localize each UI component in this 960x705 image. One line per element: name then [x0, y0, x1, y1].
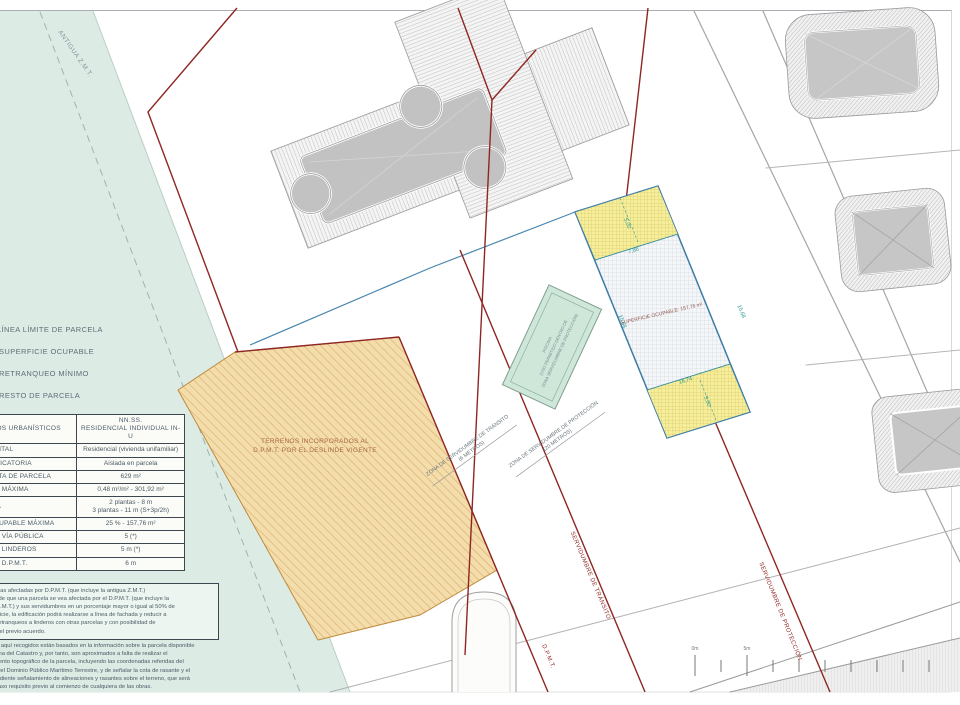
table-row: SUPERFICIE OCUPABLE MÁXIMA 25 % - 157,76…	[0, 518, 185, 531]
table-row: TIPOLOGÍA EDIFICATORIA Aislada en parcel…	[0, 457, 185, 470]
building-mid-right	[833, 187, 952, 294]
small-building-outline	[452, 592, 516, 692]
building-top-right	[784, 6, 941, 120]
terrenos-label-line2: D.P.M.T. POR EL DESLINDE VIGENTE	[253, 447, 377, 454]
piscina: PISCINA (USO PERMITIDO DENTRO DE ZONA SE…	[502, 285, 601, 409]
superficie-ocupable-band: 5,00 7,86 15,68 15,68 16,74 5,00 SUPERFI…	[575, 186, 750, 438]
table-cell-two-line: 2 plantas - 8 m 3 plantas - 11 m (S+3p/2…	[77, 496, 185, 517]
building-bottom-right	[870, 386, 960, 494]
main-building	[244, 0, 640, 276]
legend-item-superficie-ocupable: SUPERFICIE OCUPABLE	[0, 340, 134, 362]
dim-side-right: 15,68	[736, 304, 747, 319]
table-header-right: NN.SS. RESIDENCIAL INDIVIDUAL IN-U	[77, 415, 185, 444]
table-row: EDIFICABILIDAD MÁXIMA 0,48 m²/m² - 301,9…	[0, 483, 185, 496]
legend-label: RESTO DE PARCELA	[0, 391, 80, 400]
legend: LÍNEA LÍMITE DE PARCELA SUPERFICIE OCUPA…	[0, 318, 134, 406]
table-header-row: PARÁMETROS URBANÍSTICOS NN.SS. RESIDENCI…	[0, 415, 185, 444]
table-row: RETRANQUEO A VÍA PÚBLICA 5 (*)	[0, 531, 185, 544]
servidumbre-transito-label: SERVIDUMBRE DE TRÁNSITO	[569, 530, 613, 620]
table-header-left: PARÁMETROS URBANÍSTICOS	[0, 415, 77, 444]
scale-tick-0m: 0m	[692, 646, 699, 652]
terrenos-label-line1: TERRENOS INCORPORADOS AL	[261, 438, 369, 445]
notes-paragraph: Los datos aquí recogidos están basados e…	[0, 642, 210, 691]
table-row: RETRANQUEO A D.P.M.T. 6 m	[0, 557, 185, 570]
zona-proteccion-line1: ZONA DE SERVIDUMBRE DE PROTECCIÓN	[507, 399, 600, 469]
table-row: SUPERFICIE NETA DE PARCELA 629 m²	[0, 470, 185, 483]
dpmt-label: D.P.M.T.	[540, 644, 555, 670]
legend-item-retranqueo-minimo: RETRANQUEO MÍNIMO	[0, 362, 134, 384]
zona-proteccion-annotation: ZONA DE SERVIDUMBRE DE PROTECCIÓN (20 ME…	[507, 399, 605, 477]
legend-item-resto-parcela: RESTO DE PARCELA	[0, 384, 134, 406]
legend-label: SUPERFICIE OCUPABLE	[0, 347, 94, 356]
legend-item-limite-parcela: LÍNEA LÍMITE DE PARCELA	[0, 318, 134, 340]
site-plan-stage: ANTIGUA Z.M.T.	[0, 0, 960, 700]
table-row: ALTURA MÁXIMA 2 plantas - 8 m 3 plantas …	[0, 496, 185, 517]
table-row: RETRANQUEO A LINDEROS 5 m (*)	[0, 544, 185, 557]
scale-tick-5m: 5m	[744, 646, 751, 652]
table-row: USO FUNDAMENTAL Residencial (vivienda un…	[0, 444, 185, 457]
legend-label: RETRANQUEO MÍNIMO	[0, 369, 89, 378]
parcel-divider-1	[766, 150, 960, 168]
legend-label: LÍNEA LÍMITE DE PARCELA	[0, 325, 103, 334]
notes-box: (*) Parcelas afectadas por D.P.M.T. (que…	[0, 583, 219, 640]
urban-parameters-table: PARÁMETROS URBANÍSTICOS NN.SS. RESIDENCI…	[0, 414, 185, 571]
parcel-divider-2	[806, 350, 960, 365]
parcel-limit-blue-line	[250, 212, 575, 345]
